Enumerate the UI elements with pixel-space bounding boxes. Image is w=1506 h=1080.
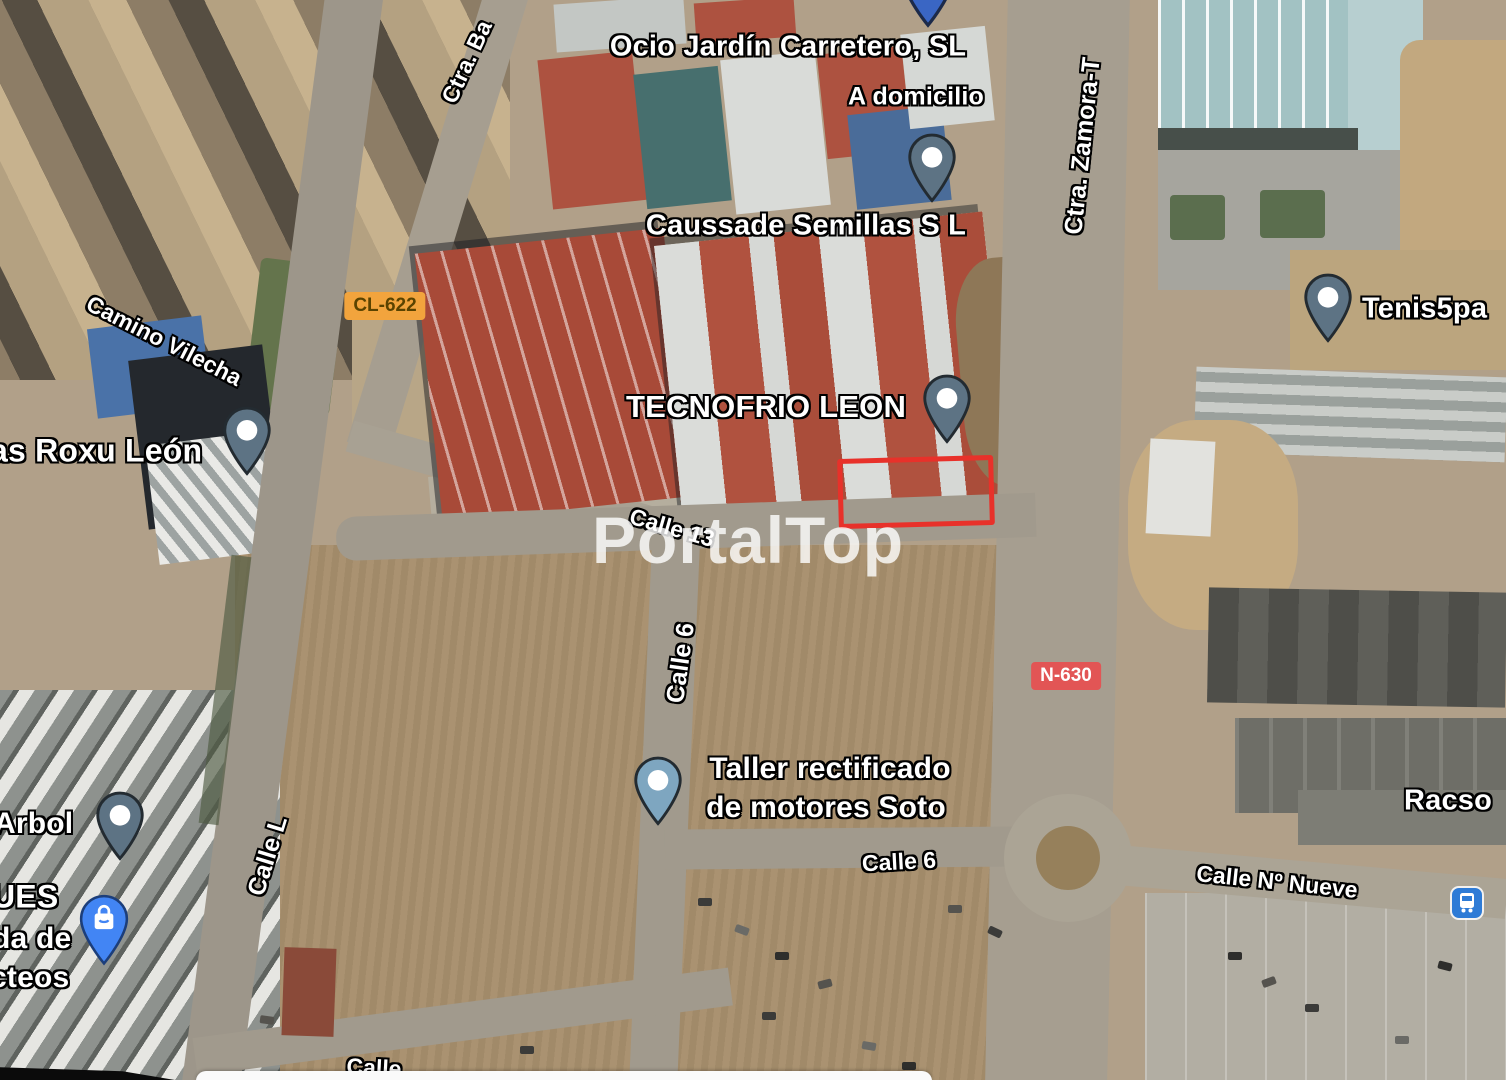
car-dot <box>948 905 962 913</box>
poi-label-ocio-jardin[interactable]: Ocio Jardín Carretero, SL <box>610 31 966 64</box>
blue-pin-top-icon[interactable] <box>900 0 956 28</box>
road-badge-cl622: CL-622 <box>344 292 425 320</box>
road-calle-6-horizontal <box>665 826 1025 869</box>
red-small-building <box>281 947 336 1037</box>
car-dot <box>902 1062 916 1070</box>
poi-label-arbol[interactable]: Arbol <box>0 807 73 841</box>
car-dot <box>762 1012 776 1020</box>
long-dark-building-1 <box>1207 587 1506 707</box>
tecnofrio-pin-icon[interactable] <box>922 374 972 444</box>
teal-building-topright <box>1158 0 1353 140</box>
poi-label-racso[interactable]: Racso <box>1404 785 1492 818</box>
parcel-highlight-rectangle <box>837 455 995 529</box>
car-dot <box>1395 1036 1409 1044</box>
warehouse-roof-red-1 <box>537 50 647 209</box>
car-dot <box>698 898 712 906</box>
road-badge-n630: N-630 <box>1031 662 1101 690</box>
taller-pin-icon[interactable] <box>633 756 683 826</box>
poi-label-tienda-line2: cteos <box>0 961 69 995</box>
bus-icon <box>1452 888 1482 918</box>
shopping-pin-icon[interactable] <box>78 894 130 966</box>
poi-label-ues[interactable]: UES <box>0 879 58 916</box>
warehouse-roof-white-1 <box>720 50 831 214</box>
poi-label-a-domicilio: A domicilio <box>848 83 984 112</box>
bottom-sheet-top-edge[interactable] <box>196 1071 932 1080</box>
street-label-calle-6-horizontal: Calle 6 <box>861 847 936 878</box>
poi-label-tenis[interactable]: Tenis5pa <box>1362 293 1487 326</box>
arbol-pin-icon[interactable] <box>95 791 145 861</box>
caussade-pin-icon[interactable] <box>907 133 957 203</box>
poi-label-taller-line2[interactable]: de motores Soto <box>706 791 946 825</box>
poi-label-roxu[interactable]: as Roxu León <box>0 433 202 470</box>
tenis-pin-icon[interactable] <box>1303 273 1353 343</box>
car-dot <box>520 1046 534 1054</box>
building-shadow-band <box>1158 128 1358 150</box>
poi-label-caussade[interactable]: Caussade Semillas S L <box>646 210 966 243</box>
bus-stop-icon[interactable] <box>1452 888 1482 918</box>
roundabout-inner <box>1036 826 1100 890</box>
car-dot <box>1305 1004 1319 1012</box>
poi-label-tienda-line1: da de <box>0 922 71 956</box>
hedge-parking-1 <box>1170 195 1225 240</box>
warehouse-roof-teal <box>633 66 732 209</box>
poi-label-tecnofrio[interactable]: TECNOFRIO LEON <box>626 389 906 425</box>
white-small-building <box>1146 438 1216 536</box>
hedge-parking-2 <box>1260 190 1325 238</box>
warehouse-block-red <box>415 228 692 523</box>
parking-bottomright <box>1145 893 1506 1080</box>
car-dot <box>775 952 789 960</box>
roxu-pin-icon[interactable] <box>222 406 272 476</box>
satellite-map[interactable]: Camino Vilecha Ctra. Ba Ctra. Zamora-T C… <box>0 0 1506 1080</box>
car-dot <box>1228 952 1242 960</box>
poi-label-taller-line1[interactable]: Taller rectificado <box>709 752 950 786</box>
